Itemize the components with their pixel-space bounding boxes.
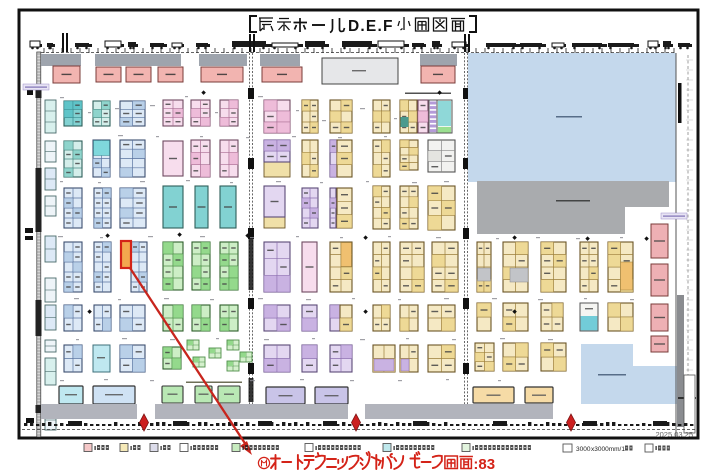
svg-text::83: :83	[473, 456, 495, 473]
svg-text:D.E.F: D.E.F	[348, 18, 394, 35]
svg-text:3000: 3000	[576, 446, 591, 453]
svg-text:2025.03.25: 2025.03.25	[655, 430, 693, 439]
svg-text:x3000mm/1: x3000mm/1	[591, 446, 625, 453]
